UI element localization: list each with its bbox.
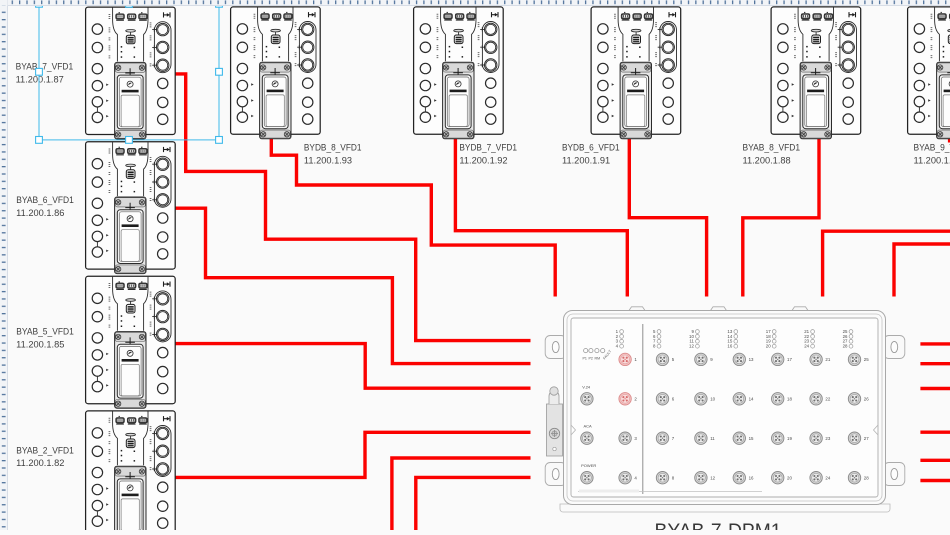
svg-text:28: 28 <box>864 475 869 480</box>
svg-text:22: 22 <box>825 396 830 401</box>
svg-text:18: 18 <box>787 396 792 401</box>
svg-text:P1: P1 <box>583 357 587 361</box>
svg-text:11.200.1.87: 11.200.1.87 <box>16 75 64 85</box>
svg-text:27: 27 <box>864 436 869 441</box>
svg-text:20: 20 <box>766 344 771 349</box>
svg-text:24: 24 <box>804 344 809 349</box>
svg-text:11.200.1.86: 11.200.1.86 <box>16 208 64 218</box>
svg-text:12: 12 <box>710 475 715 480</box>
svg-text:12: 12 <box>689 344 694 349</box>
svg-text:BYAB_8_VFD1: BYAB_8_VFD1 <box>743 142 801 152</box>
svg-text:11.200.1.82: 11.200.1.82 <box>16 458 64 468</box>
svg-text:26: 26 <box>864 396 869 401</box>
svg-text:POWER: POWER <box>581 463 596 468</box>
svg-text:11.200.1.89: 11.200.1.89 <box>914 155 950 165</box>
svg-text:BYAB_7_VFD1: BYAB_7_VFD1 <box>16 62 74 72</box>
svg-text:16: 16 <box>749 475 754 480</box>
svg-text:BYAB_6_VFD1: BYAB_6_VFD1 <box>16 195 74 205</box>
svg-text:BYAB-7-DPM1: BYAB-7-DPM1 <box>655 521 782 530</box>
svg-text:11.200.1.88: 11.200.1.88 <box>743 155 791 165</box>
svg-text:20: 20 <box>787 475 792 480</box>
svg-text:19: 19 <box>787 436 792 441</box>
svg-text:BYAB_9_VFD1: BYAB_9_VFD1 <box>914 142 950 152</box>
svg-text:25: 25 <box>864 357 869 362</box>
svg-text:21: 21 <box>825 357 830 362</box>
svg-text:11.200.1.85: 11.200.1.85 <box>16 340 64 350</box>
svg-text:BYAB_5_VFD1: BYAB_5_VFD1 <box>16 326 74 336</box>
svg-text:17: 17 <box>787 357 792 362</box>
svg-text:BYDB_8_VFD1: BYDB_8_VFD1 <box>304 142 362 152</box>
svg-text:16: 16 <box>727 344 732 349</box>
svg-text:14: 14 <box>749 396 754 401</box>
svg-text:11.200.1.91: 11.200.1.91 <box>562 155 610 165</box>
svg-text:24: 24 <box>825 475 830 480</box>
svg-text:13: 13 <box>749 357 754 362</box>
svg-text:23: 23 <box>825 436 830 441</box>
svg-text:BYDB_6_VFD1: BYDB_6_VFD1 <box>562 142 620 152</box>
svg-text:11: 11 <box>710 436 715 441</box>
svg-text:11.200.1.93: 11.200.1.93 <box>304 155 352 165</box>
svg-text:11.200.1.92: 11.200.1.92 <box>459 155 507 165</box>
svg-text:15: 15 <box>749 436 754 441</box>
svg-text:V.24: V.24 <box>582 384 591 389</box>
svg-text:28: 28 <box>843 344 848 349</box>
svg-text:P2: P2 <box>589 357 593 361</box>
svg-text:BYAB_2_VFD1: BYAB_2_VFD1 <box>16 446 74 456</box>
svg-text:ACA: ACA <box>583 424 592 429</box>
svg-text:RM: RM <box>595 357 601 361</box>
svg-text:10: 10 <box>710 396 715 401</box>
svg-text:BYDB_7_VFD1: BYDB_7_VFD1 <box>459 142 517 152</box>
